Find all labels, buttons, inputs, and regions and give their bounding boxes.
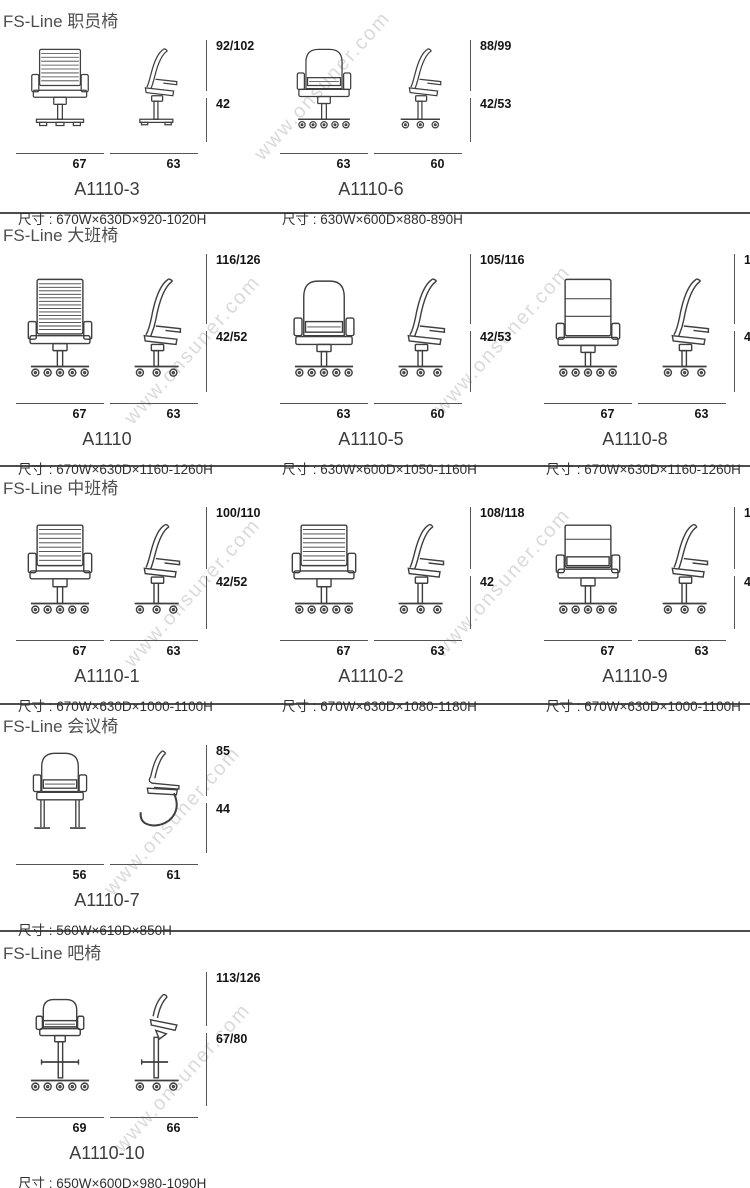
seat-height-dimension: 42/53 bbox=[470, 331, 528, 392]
chair-front-drawing bbox=[16, 40, 104, 142]
product-a1110-5: 63 60 105/116 42/53 A11 bbox=[280, 254, 528, 478]
chair-front-drawing bbox=[280, 254, 368, 392]
dimension-line bbox=[638, 640, 726, 641]
chair-side-drawing bbox=[374, 507, 462, 629]
seat-height-dimension: 42/52 bbox=[734, 331, 750, 392]
product-code: A1110-1 bbox=[16, 666, 198, 687]
chair-side-drawing bbox=[110, 745, 198, 853]
dimension-line bbox=[16, 153, 104, 154]
side-width-dimension: 61 bbox=[110, 864, 198, 882]
back-height-dimension: 88/99 bbox=[470, 40, 528, 91]
dimension-line bbox=[16, 403, 104, 404]
product-code: A1110-8 bbox=[544, 429, 726, 450]
product-a1110-1: 67 63 100/110 42/52 A11 bbox=[16, 507, 264, 715]
back-height-dimension: 92/102 bbox=[206, 40, 264, 91]
dimension-line bbox=[544, 403, 632, 404]
product-a1110-7: 56 61 85 44 A1110-7 bbox=[16, 745, 264, 939]
seat-height-dimension: 67/80 bbox=[206, 1033, 264, 1106]
front-width-dimension: 63 bbox=[280, 153, 368, 171]
dimension-line bbox=[280, 640, 368, 641]
front-width-dimension: 69 bbox=[16, 1117, 104, 1135]
chair-side-drawing bbox=[110, 507, 198, 629]
front-width-dimension: 56 bbox=[16, 864, 104, 882]
side-width-dimension: 63 bbox=[638, 640, 726, 658]
chair-front-drawing bbox=[544, 507, 632, 629]
front-width-dimension: 67 bbox=[16, 640, 104, 658]
chair-side-drawing bbox=[110, 972, 198, 1106]
product-code: A1110-9 bbox=[544, 666, 726, 687]
front-width-dimension: 67 bbox=[280, 640, 368, 658]
chair-front-drawing bbox=[16, 972, 104, 1106]
section-bar-chair: www.onsuner.com FS-Line 吧椅 69 bbox=[0, 930, 750, 1188]
front-width-dimension: 63 bbox=[280, 403, 368, 421]
back-height-dimension: 108/118 bbox=[470, 507, 528, 569]
dimension-line bbox=[374, 153, 462, 154]
product-a1110-2: 67 63 108/118 42 A1110- bbox=[280, 507, 528, 715]
height-dimensions: 100/110 42/52 bbox=[206, 507, 264, 629]
section-title: FS-Line 中班椅 bbox=[3, 474, 750, 499]
dimension-line bbox=[16, 640, 104, 641]
product-code: A1110-10 bbox=[16, 1143, 198, 1164]
back-height-dimension: 116/126 bbox=[206, 254, 264, 324]
chair-front-drawing bbox=[16, 507, 104, 629]
side-width-dimension: 66 bbox=[110, 1117, 198, 1135]
seat-height-dimension: 42/53 bbox=[470, 98, 528, 142]
product-spec: 尺寸 : 650W×600D×980-1090H bbox=[18, 1172, 264, 1188]
side-width-dimension: 60 bbox=[374, 403, 462, 421]
section-title: FS-Line 吧椅 bbox=[3, 939, 750, 964]
product-a1110-8: 67 63 116/126 42/52 A11 bbox=[544, 254, 750, 478]
back-height-dimension: 113/126 bbox=[206, 972, 264, 1026]
dimension-line bbox=[280, 403, 368, 404]
product-code: A1110 bbox=[16, 429, 198, 450]
chair-side-drawing bbox=[638, 507, 726, 629]
side-width-dimension: 60 bbox=[374, 153, 462, 171]
side-width-dimension: 63 bbox=[110, 403, 198, 421]
back-height-dimension: 100/110 bbox=[206, 507, 264, 569]
dimension-line bbox=[16, 1117, 104, 1118]
section-staff-chair: www.onsuner.com FS-Line 职员椅 67 bbox=[0, 0, 750, 212]
back-height-dimension: 105/116 bbox=[470, 254, 528, 324]
chair-front-drawing bbox=[16, 254, 104, 392]
front-width-dimension: 67 bbox=[544, 403, 632, 421]
dimension-line bbox=[374, 640, 462, 641]
dimension-line bbox=[110, 640, 198, 641]
section-title: FS-Line 会议椅 bbox=[3, 712, 750, 737]
dimension-line bbox=[16, 864, 104, 865]
front-width-dimension: 67 bbox=[16, 403, 104, 421]
height-dimensions: 105/116 42/53 bbox=[470, 254, 528, 392]
chair-front-drawing bbox=[280, 507, 368, 629]
height-dimensions: 92/102 42 bbox=[206, 40, 264, 142]
height-dimensions: 113/126 67/80 bbox=[206, 972, 264, 1106]
height-dimensions: 85 44 bbox=[206, 745, 264, 853]
product-a1110-6: 63 60 88/99 42/53 A1110 bbox=[280, 40, 528, 228]
seat-height-dimension: 42 bbox=[470, 576, 528, 629]
back-height-dimension: 100/110 bbox=[734, 507, 750, 569]
product-a1110: 67 63 116/126 42/52 A11 bbox=[16, 254, 264, 478]
product-code: A1110-2 bbox=[280, 666, 462, 687]
front-width-dimension: 67 bbox=[544, 640, 632, 658]
chair-side-drawing bbox=[374, 254, 462, 392]
chair-side-drawing bbox=[638, 254, 726, 392]
chair-side-drawing bbox=[110, 254, 198, 392]
section-midback-chair: www.onsuner.com www.onsuner.com FS-Line … bbox=[0, 465, 750, 703]
height-dimensions: 116/126 42/52 bbox=[206, 254, 264, 392]
height-dimensions: 116/126 42/52 bbox=[734, 254, 750, 392]
dimension-line bbox=[110, 864, 198, 865]
dimension-line bbox=[280, 153, 368, 154]
product-code: A1110-3 bbox=[16, 179, 198, 200]
product-a1110-10: 69 66 113/126 67/80 A11 bbox=[16, 972, 264, 1188]
height-dimensions: 100/110 42/52 bbox=[734, 507, 750, 629]
section-title: FS-Line 职员椅 bbox=[3, 7, 750, 32]
section-executive-chair: www.onsuner.com www.onsuner.com FS-Line … bbox=[0, 212, 750, 465]
product-code: A1110-6 bbox=[280, 179, 462, 200]
section-title: FS-Line 大班椅 bbox=[3, 221, 750, 246]
seat-height-dimension: 42/52 bbox=[206, 331, 264, 392]
height-dimensions: 88/99 42/53 bbox=[470, 40, 528, 142]
product-code: A1110-7 bbox=[16, 890, 198, 911]
product-a1110-3: 67 63 92/102 42 A1110-3 bbox=[16, 40, 264, 228]
side-width-dimension: 63 bbox=[110, 640, 198, 658]
chair-side-drawing bbox=[374, 40, 462, 142]
chair-front-drawing bbox=[280, 40, 368, 142]
product-spec: 尺寸 : 560W×610D×850H bbox=[18, 919, 264, 939]
side-width-dimension: 63 bbox=[638, 403, 726, 421]
chair-front-drawing bbox=[16, 745, 104, 853]
product-a1110-9: 67 63 100/110 42/52 A11 bbox=[544, 507, 750, 715]
section-conference-chair: www.onsuner.com FS-Line 会议椅 56 bbox=[0, 703, 750, 930]
spec-sheet: www.onsuner.com FS-Line 职员椅 67 bbox=[0, 0, 750, 1188]
dimension-line bbox=[110, 403, 198, 404]
dimension-line bbox=[110, 153, 198, 154]
seat-height-dimension: 42 bbox=[206, 98, 264, 142]
dimension-line bbox=[374, 403, 462, 404]
product-code: A1110-5 bbox=[280, 429, 462, 450]
back-height-dimension: 116/126 bbox=[734, 254, 750, 324]
dimension-line bbox=[638, 403, 726, 404]
seat-height-dimension: 44 bbox=[206, 803, 264, 854]
seat-height-dimension: 42/52 bbox=[734, 576, 750, 629]
dimension-line bbox=[544, 640, 632, 641]
chair-front-drawing bbox=[544, 254, 632, 392]
seat-height-dimension: 42/52 bbox=[206, 576, 264, 629]
side-width-dimension: 63 bbox=[110, 153, 198, 171]
front-width-dimension: 67 bbox=[16, 153, 104, 171]
chair-side-drawing bbox=[110, 40, 198, 142]
height-dimensions: 108/118 42 bbox=[470, 507, 528, 629]
side-width-dimension: 63 bbox=[374, 640, 462, 658]
dimension-line bbox=[110, 1117, 198, 1118]
back-height-dimension: 85 bbox=[206, 745, 264, 796]
